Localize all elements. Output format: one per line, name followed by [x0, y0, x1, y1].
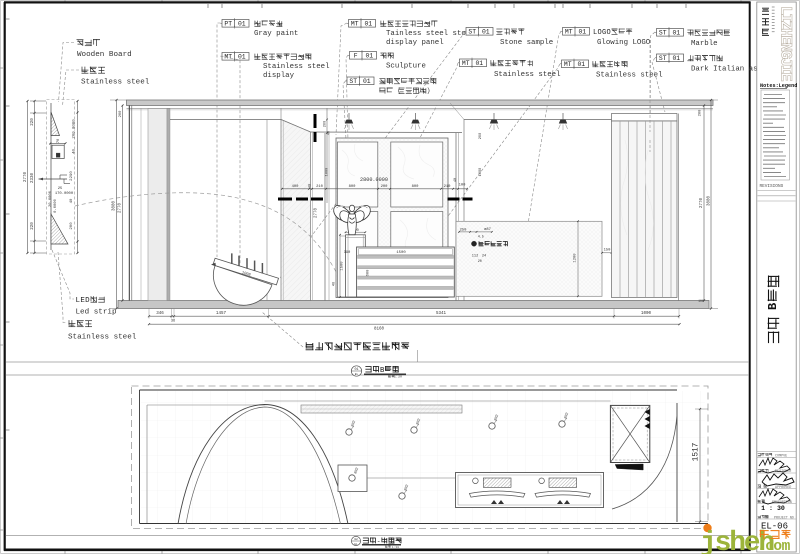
svg-text:01: 01 [578, 29, 586, 36]
svg-text:1457: 1457 [216, 312, 227, 316]
svg-text:40: 40 [333, 282, 337, 286]
svg-text:LIZHENGJIE: LIZHENGJIE [777, 6, 795, 82]
svg-text:1 : 30: 1 : 30 [761, 505, 785, 512]
svg-text:REVISIONS: REVISIONS [760, 184, 784, 189]
svg-text:O: O [607, 29, 611, 37]
svg-text:200: 200 [323, 121, 327, 127]
svg-text:MT: MT [462, 60, 470, 67]
svg-text:01: 01 [672, 30, 680, 37]
svg-text:40: 40 [454, 178, 458, 182]
svg-text:40: 40 [308, 184, 312, 188]
svg-text:220: 220 [31, 222, 35, 230]
svg-text:01: 01 [672, 55, 680, 62]
svg-text:Stone sample: Stone sample [500, 39, 553, 47]
svg-text:EL: EL [355, 373, 359, 376]
svg-text:Stainless steel: Stainless steel [81, 79, 150, 87]
svg-text:ø87: ø87 [484, 228, 491, 232]
svg-text:1200: 1200 [574, 253, 578, 263]
svg-text:Led strip: Led strip [76, 309, 117, 317]
svg-text:ST: ST [659, 30, 667, 37]
svg-text:ST: ST [659, 55, 667, 62]
svg-text:0.0000: 0.0000 [54, 198, 58, 212]
svg-text:1500: 1500 [341, 261, 345, 271]
svg-text:36: 36 [171, 320, 175, 324]
svg-text:200: 200 [699, 109, 703, 117]
svg-text:MT: MT [564, 61, 572, 68]
svg-text:400: 400 [292, 185, 300, 189]
svg-text:Dark Italian ash: Dark Italian ash [691, 66, 762, 74]
svg-text:2330: 2330 [31, 172, 35, 183]
svg-text:390: 390 [344, 251, 350, 255]
svg-text:B: B [766, 303, 780, 310]
svg-text:ST: ST [468, 29, 476, 36]
svg-text:20.0000: 20.0000 [49, 190, 53, 207]
svg-text:4.5: 4.5 [478, 236, 484, 240]
svg-text:40: 40 [327, 131, 331, 135]
svg-text:MT: MT [565, 29, 573, 36]
svg-text:COMPVE: COMPVE [775, 454, 787, 458]
svg-text:100: 100 [698, 299, 704, 303]
svg-text:2770: 2770 [24, 171, 28, 182]
svg-text:70: 70 [57, 138, 61, 143]
svg-text:3000: 3000 [707, 195, 711, 206]
svg-text:2770: 2770 [119, 202, 123, 213]
svg-text:MT: MT [351, 21, 359, 28]
svg-text:Wooden Board: Wooden Board [77, 51, 132, 59]
svg-text:40: 40 [70, 198, 74, 203]
svg-text:Glowing LOGO: Glowing LOGO [597, 39, 651, 47]
svg-text:40: 40 [73, 149, 77, 154]
svg-text:display panel: display panel [386, 39, 444, 47]
svg-text:2770: 2770 [315, 207, 319, 218]
svg-text:Sculpture: Sculpture [386, 63, 426, 71]
svg-text:.com: .com [757, 539, 791, 554]
svg-text:D: D [85, 297, 90, 305]
svg-text:01: 01 [364, 21, 372, 28]
svg-text:01: 01 [365, 53, 373, 60]
svg-text:25: 25 [58, 187, 63, 191]
svg-text:01: 01 [238, 54, 246, 61]
svg-text:ST: ST [349, 78, 357, 85]
svg-text:Stainless steel: Stainless steel [263, 63, 330, 71]
svg-text:1000: 1000 [479, 168, 483, 177]
svg-text:Stainless steel: Stainless steel [596, 72, 663, 80]
svg-text:1517: 1517 [693, 442, 701, 461]
svg-text:2800.0000: 2800.0000 [360, 177, 388, 183]
svg-text:01: 01 [475, 60, 483, 67]
svg-text:100: 100 [459, 184, 467, 188]
svg-text:200: 200 [119, 110, 123, 118]
svg-text:2770: 2770 [700, 197, 704, 208]
svg-text:220: 220 [31, 118, 35, 126]
svg-text:Marble: Marble [691, 40, 718, 48]
svg-text:01: 01 [238, 21, 246, 28]
svg-text:150: 150 [604, 249, 612, 253]
svg-text:PT: PT [224, 21, 232, 28]
svg-text:600: 600 [367, 269, 371, 277]
svg-text:200: 200 [70, 222, 74, 230]
svg-text:346: 346 [156, 312, 164, 316]
svg-text:2290: 2290 [70, 171, 74, 181]
svg-text:210: 210 [316, 185, 324, 189]
svg-text:EL: EL [354, 543, 358, 546]
svg-text:display: display [263, 72, 295, 80]
svg-text:200: 200 [479, 133, 483, 139]
svg-text:01: 01 [363, 78, 371, 85]
svg-text:01: 01 [482, 29, 490, 36]
svg-text:02: 02 [354, 538, 358, 541]
svg-text:210: 210 [444, 185, 452, 189]
svg-text:200.0000: 200.0000 [73, 119, 77, 139]
svg-text:F: F [354, 53, 358, 60]
svg-text:250: 250 [460, 229, 468, 233]
svg-text:1000: 1000 [641, 312, 652, 316]
svg-text:Stainless steel: Stainless steel [68, 334, 137, 342]
svg-text:5341: 5341 [436, 312, 447, 316]
svg-text:1000: 1000 [325, 168, 329, 177]
svg-text:112: 112 [472, 255, 478, 259]
svg-text:01: 01 [354, 368, 358, 372]
svg-text:1:30: 1:30 [394, 376, 402, 380]
svg-text:20: 20 [478, 260, 482, 264]
svg-text:8160: 8160 [374, 328, 385, 332]
svg-text:24: 24 [482, 255, 486, 259]
svg-text:PROJECT NO: PROJECT NO [774, 515, 794, 519]
svg-text:1:30: 1:30 [392, 546, 399, 549]
svg-text:Gray paint: Gray paint [254, 30, 298, 38]
svg-text:1500: 1500 [396, 251, 406, 255]
svg-text:Stainless steel: Stainless steel [494, 71, 561, 79]
svg-text:200: 200 [381, 185, 389, 189]
svg-text:170.0000: 170.0000 [55, 192, 74, 196]
svg-text:800: 800 [349, 185, 357, 189]
svg-text:APPROVED: APPROVED [775, 486, 791, 490]
svg-text:800: 800 [412, 185, 420, 189]
svg-text:）: ） [427, 87, 434, 96]
svg-text:01: 01 [577, 61, 585, 68]
svg-text:3000: 3000 [113, 200, 117, 211]
